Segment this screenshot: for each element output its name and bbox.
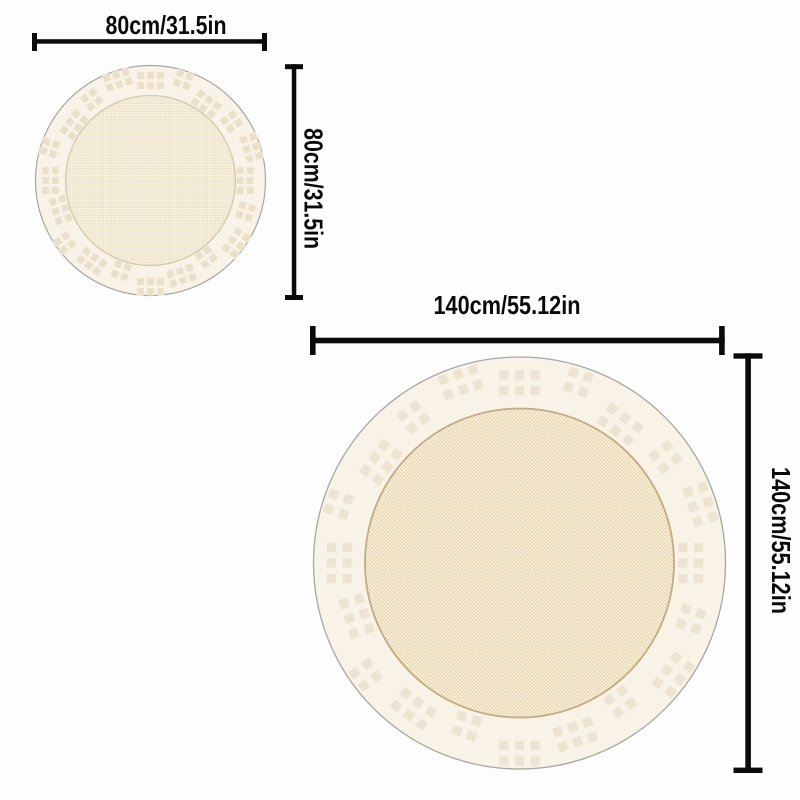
svg-text:80cm/31.5in: 80cm/31.5in: [106, 10, 227, 40]
svg-text:140cm/55.12in: 140cm/55.12in: [434, 290, 581, 320]
svg-text:140cm/55.12in: 140cm/55.12in: [766, 467, 796, 614]
svg-text:80cm/31.5in: 80cm/31.5in: [298, 128, 328, 249]
